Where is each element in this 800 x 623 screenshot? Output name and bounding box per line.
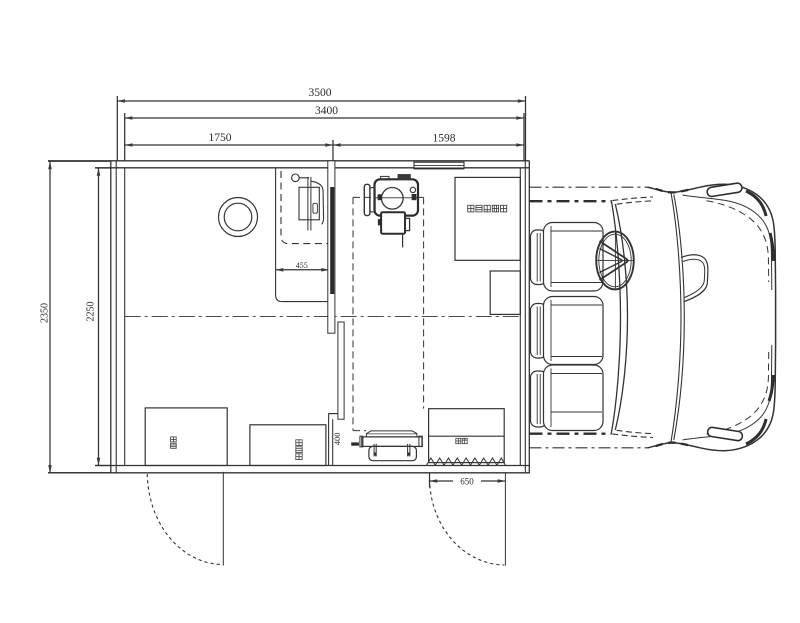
svg-text:1598: 1598 bbox=[433, 133, 456, 145]
svg-text:650: 650 bbox=[460, 477, 474, 487]
svg-text:400: 400 bbox=[332, 433, 342, 446]
svg-text:2250: 2250 bbox=[86, 302, 97, 322]
svg-text:3400: 3400 bbox=[315, 105, 338, 117]
svg-text:1750: 1750 bbox=[209, 132, 232, 144]
svg-text:3500: 3500 bbox=[309, 87, 332, 99]
svg-text:455: 455 bbox=[296, 261, 308, 270]
svg-text:2350: 2350 bbox=[40, 303, 51, 323]
